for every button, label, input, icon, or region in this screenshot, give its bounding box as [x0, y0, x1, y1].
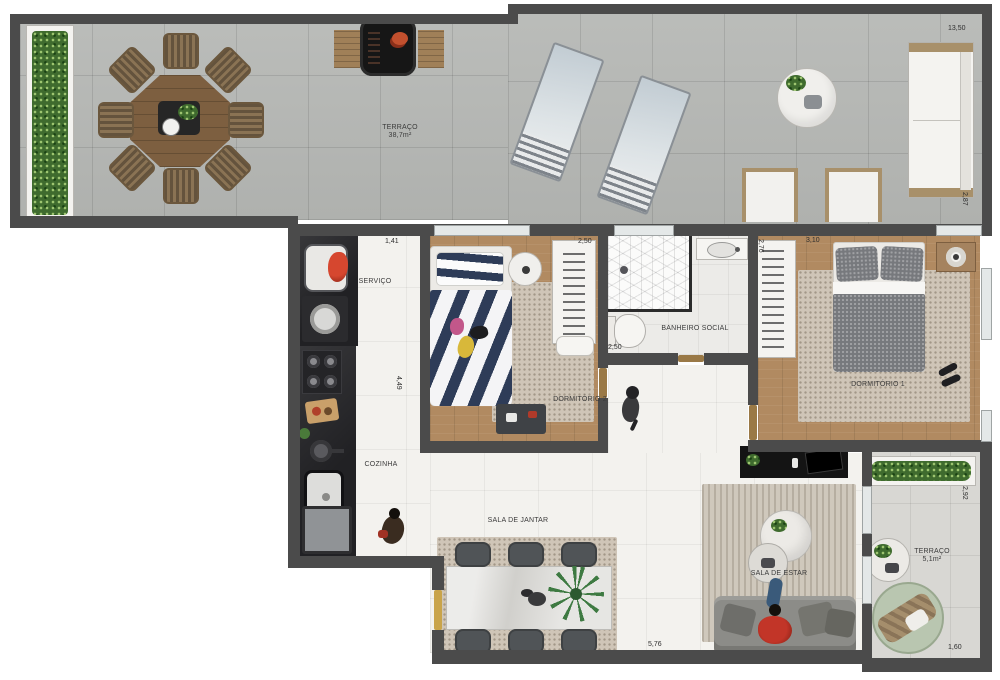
label-dormitorio2: DORMITÓRIO 2 [545, 396, 615, 404]
outdoor-armchair-1 [742, 168, 798, 222]
dining-chair-top-3 [561, 542, 597, 567]
board-food [311, 406, 321, 416]
round-lounge-chair [872, 582, 944, 654]
toilet [602, 314, 646, 346]
wall-terrace-top-right [508, 4, 992, 14]
side-table-items [885, 563, 899, 573]
lamp-center [953, 254, 959, 260]
wardrobe-hangers [563, 249, 585, 335]
double-bed-pillow-right [880, 246, 924, 282]
bbq-side-counter-left [334, 30, 360, 68]
label-banheiro: BANHEIRO SOCIAL [655, 325, 735, 333]
window-bedroom1-top [936, 225, 982, 236]
plant-center [570, 588, 582, 600]
outdoor-table-plant [786, 75, 806, 91]
coffee-table-item [761, 558, 775, 568]
bbq-grill [360, 18, 416, 76]
dog-head [626, 386, 639, 399]
wall-bedroom2-bottom [420, 441, 608, 453]
wall-terrace-right [982, 4, 992, 236]
wicker-chair-w [98, 102, 134, 138]
wall-terrace-bottom-left [10, 216, 298, 228]
label-cozinha: COZINHA [358, 461, 404, 469]
dim-terrace-depth: 2,87 [960, 192, 968, 206]
refrigerator [302, 506, 352, 554]
label-estar: SALA DE ESTAR [748, 570, 810, 578]
floor-plan: TERRAÇO 38,7m² SERVIÇO COZINHA DORMITÓRI… [0, 0, 1000, 680]
toy-pink [450, 318, 464, 335]
wall-terrace-top-left [10, 14, 508, 24]
wall-terrace-left [10, 14, 20, 226]
door-kitchen-entry [434, 590, 442, 630]
label-servico: SERVIÇO [352, 278, 398, 286]
bbq-side-counter-right [418, 30, 444, 68]
label-terrace-main: TERRAÇO 38,7m² [370, 124, 430, 140]
label-terrace-small: TERRAÇO 5,1m² [908, 548, 956, 564]
window-bedroom2-terrace [434, 225, 530, 236]
outdoor-sofa [908, 42, 974, 198]
dining-plates [528, 592, 546, 606]
table-lamp [946, 247, 966, 267]
terrace-small-area: 5,1m² [908, 556, 956, 564]
wall-terrace-small-right [980, 440, 992, 672]
terrace-main-name: TERRAÇO [370, 124, 430, 132]
wall-living-bottom [432, 650, 870, 664]
dim-terrace2-height: 2,92 [960, 486, 968, 500]
door-bathroom [678, 355, 704, 362]
wall-bathroom-bottom-left [598, 353, 678, 365]
wall-bedroom2-right-upper [598, 236, 608, 368]
person-on-sofa [752, 578, 796, 648]
dog [616, 386, 648, 430]
dim-dorm2-width: 2,50 [578, 238, 592, 246]
wall-terrace-step [508, 4, 518, 24]
cutting-board [305, 398, 340, 424]
bathroom-sink-counter [696, 238, 748, 260]
vertical-garden-planter [26, 25, 74, 221]
wall-hall-dorm1-upper [748, 365, 758, 405]
sink-drain [322, 493, 330, 501]
label-dormitorio1: DORMITÓRIO 1 [843, 381, 913, 389]
wall-dining-left-upper [432, 556, 444, 590]
window-bedroom1-right-1 [981, 268, 992, 340]
burner [307, 375, 320, 388]
frying-pan [310, 440, 332, 462]
desk-item-red [528, 411, 537, 418]
console-plant [746, 454, 760, 466]
window-living-terrace2-1 [862, 486, 872, 534]
table-plate [162, 118, 180, 136]
door-bedroom1 [749, 405, 757, 440]
door-bedroom2 [599, 368, 607, 398]
burner [307, 355, 320, 368]
wall-living-terrace2-lower [862, 604, 872, 658]
wall-bedroom2-right-lower [598, 398, 608, 453]
outdoor-armchair-2 [825, 168, 882, 222]
terrace-main-area: 38,7m² [370, 132, 430, 140]
wall-kitchen-bottom [288, 556, 444, 568]
red-blanket [758, 616, 792, 644]
board-food [324, 407, 333, 416]
bedroom2-desk [496, 404, 546, 434]
dim-terrace2-width: 1,60 [948, 644, 962, 652]
wicker-chair-e [228, 102, 264, 138]
terrace-small-planter [866, 456, 976, 486]
burner [324, 375, 337, 388]
dog-body [620, 395, 640, 423]
bedroom2-ottoman [556, 336, 594, 356]
bedroom2-side-table [508, 252, 542, 286]
window-bedroom1-right-2 [981, 410, 992, 442]
window-living-terrace2-2 [862, 556, 872, 604]
shoes-pair [938, 364, 964, 388]
washer-drum [310, 304, 340, 334]
person-item-red [378, 530, 388, 538]
dim-terrace-width: 13,50 [948, 25, 966, 33]
bathroom-sink-basin [707, 242, 737, 258]
nightstand [936, 242, 976, 272]
double-bed-duvet [833, 294, 925, 372]
wall-living-terrace2-mid [862, 534, 872, 556]
herb-pot [299, 428, 310, 439]
wall-dorm1-bottom [748, 440, 992, 452]
dim-sala-width: 5,76 [648, 641, 662, 649]
dim-banheiro-height: 2,76 [756, 239, 764, 253]
dim-banheiro-width: 2,50 [608, 344, 622, 352]
dining-chair-top-1 [455, 542, 491, 567]
wicker-chair-s [163, 168, 199, 204]
vertical-garden-plants [32, 31, 68, 215]
wall-living-terrace2-upper [862, 452, 872, 486]
desk-item-white [506, 413, 517, 422]
planter-plants [871, 461, 971, 481]
table-plant [178, 104, 198, 120]
sofa-pillow-right-2 [824, 608, 856, 638]
wall-bedroom2-left [420, 236, 430, 453]
wall-apartment-left [288, 224, 300, 568]
shower-drain [620, 266, 628, 274]
double-bed-pillow-left [835, 246, 879, 282]
dim-cozinha-height: 4,49 [394, 376, 402, 390]
bbq-grate-lines [368, 30, 380, 64]
bathroom-faucet [735, 247, 740, 252]
terrace-small-side-table [866, 538, 910, 582]
outdoor-table-items [804, 95, 822, 109]
tv-remote [792, 458, 798, 468]
wardrobe-hangers [762, 250, 784, 347]
bbq-food [392, 32, 408, 45]
side-table-plant [874, 544, 892, 558]
side-table-dot [522, 266, 530, 274]
single-bed-pillow [436, 252, 504, 286]
toilet-bowl [614, 314, 646, 348]
window-bathroom [614, 225, 674, 236]
coffee-table-plant [771, 519, 787, 532]
person-standing [378, 508, 408, 548]
label-jantar: SALA DE JANTAR [480, 517, 556, 525]
stove-cooktop [302, 350, 342, 394]
dining-chair-top-2 [508, 542, 544, 567]
dining-table-plant [548, 566, 604, 622]
outdoor-sofa-frame-top [909, 43, 973, 52]
shower-hex-tiles [608, 236, 692, 312]
burner [324, 355, 337, 368]
dim-servico-width: 1,41 [385, 238, 399, 246]
person-head [769, 604, 781, 616]
dim-dorm1-width: 3,10 [806, 237, 820, 245]
bedroom2-wardrobe [552, 240, 596, 344]
washing-machine [302, 296, 348, 342]
pan-handle [330, 449, 344, 453]
wall-bathroom-right [748, 236, 758, 365]
terrace-small-name: TERRAÇO [908, 548, 956, 556]
wall-terrace-small-bottom [862, 658, 992, 672]
outdoor-round-table [777, 68, 837, 128]
person-head [389, 508, 400, 519]
wicker-chair-n [163, 33, 199, 69]
outdoor-sofa-backrest [960, 52, 971, 190]
